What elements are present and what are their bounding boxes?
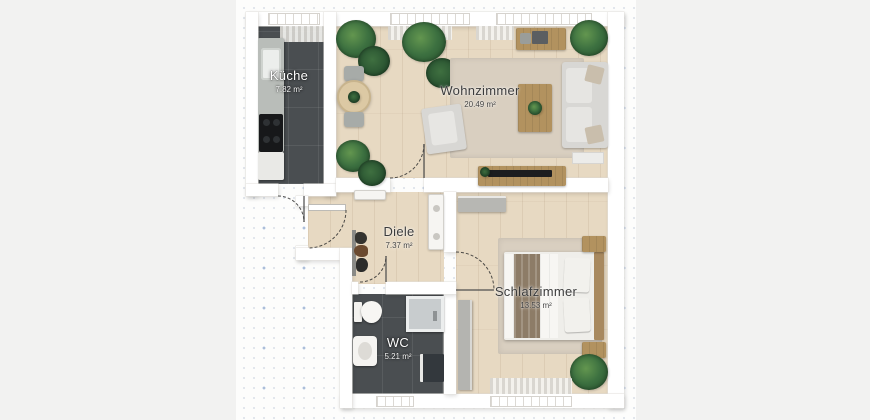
plant-icon	[402, 22, 446, 62]
shower-handle	[433, 311, 437, 321]
kitchen-blind	[280, 26, 324, 42]
kitchen-window	[268, 13, 320, 25]
laptop	[532, 31, 548, 44]
sofa-pillow	[584, 124, 604, 144]
armchair	[421, 103, 467, 154]
sofa-pillow	[584, 64, 605, 85]
tv-plant-icon	[480, 167, 490, 177]
wall-kitchen-south-right	[304, 184, 336, 196]
wall-hall-west-upper	[296, 196, 308, 206]
tv	[488, 170, 552, 177]
shoe-cabinet	[354, 190, 386, 200]
wardrobe-knob	[433, 233, 440, 240]
bed-headboard	[594, 252, 604, 340]
wc-sink	[353, 336, 377, 366]
desk-chair	[520, 33, 531, 44]
wall-wc-north-right	[386, 282, 456, 294]
radiator	[572, 152, 604, 164]
bedroom-plant-icon	[570, 354, 608, 390]
dining-chair-bottom	[344, 112, 364, 127]
shower	[406, 296, 444, 332]
kitchen-sink	[261, 48, 281, 80]
wall-kitchen-living	[324, 12, 336, 196]
bed	[504, 252, 604, 340]
hall-wardrobe	[428, 194, 444, 250]
bed-pillow	[563, 297, 591, 332]
wall-wc-north-left	[352, 282, 358, 294]
wall-east	[608, 12, 624, 408]
bedroom-curtain	[490, 378, 572, 394]
wall-bedroom-west-upper	[444, 192, 456, 252]
washing-machine	[420, 354, 444, 382]
table-plant-icon	[348, 91, 360, 103]
kitchen-appliance	[258, 152, 284, 180]
livingroom-curtain-right	[476, 26, 514, 40]
nightstand-top	[582, 236, 606, 252]
hallway-floor-upper	[308, 192, 444, 250]
wall-bedroom-west-lower	[444, 290, 456, 394]
bedroom-dresser	[458, 196, 506, 212]
wall-west-kitchen	[246, 12, 258, 196]
wardrobe-knob	[433, 205, 440, 212]
cooktop-burners	[263, 119, 270, 126]
bedroom-wardrobe	[458, 300, 472, 390]
bed-pillow	[563, 257, 591, 292]
plant-icon	[358, 160, 386, 186]
dining-chair-top	[344, 66, 364, 81]
sink-basin	[358, 342, 372, 360]
wall-kitchen-south-left	[246, 184, 278, 196]
armchair-cushion	[428, 110, 458, 145]
coffee-table-plant-icon	[528, 101, 542, 115]
bag-item	[354, 245, 368, 257]
sofa	[562, 62, 608, 148]
floorplan: Küche 7.82 m² Wohnzimmer 20.49 m² Diele …	[0, 0, 870, 420]
wc-window	[376, 396, 414, 407]
wall-wc-west	[340, 248, 352, 408]
corner-plant-icon	[570, 20, 608, 56]
entry-door-leaf	[308, 204, 346, 211]
bedroom-window	[490, 396, 572, 407]
bed-runner-blanket	[514, 254, 540, 338]
coat-item	[355, 232, 367, 244]
